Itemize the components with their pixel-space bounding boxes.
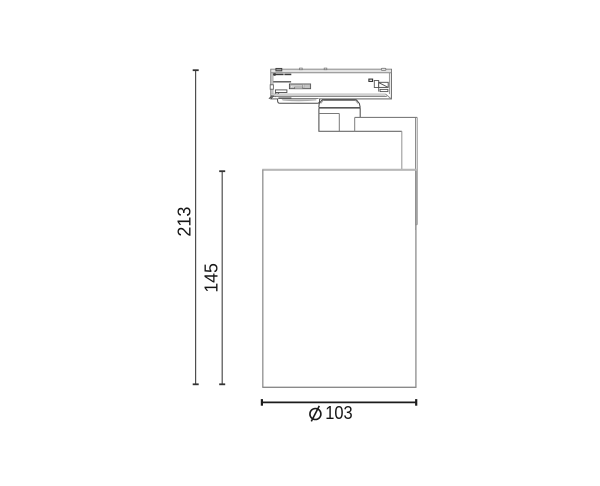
svg-text:103: 103 bbox=[325, 403, 352, 423]
svg-text:213: 213 bbox=[175, 207, 195, 237]
svg-text:145: 145 bbox=[202, 263, 222, 293]
